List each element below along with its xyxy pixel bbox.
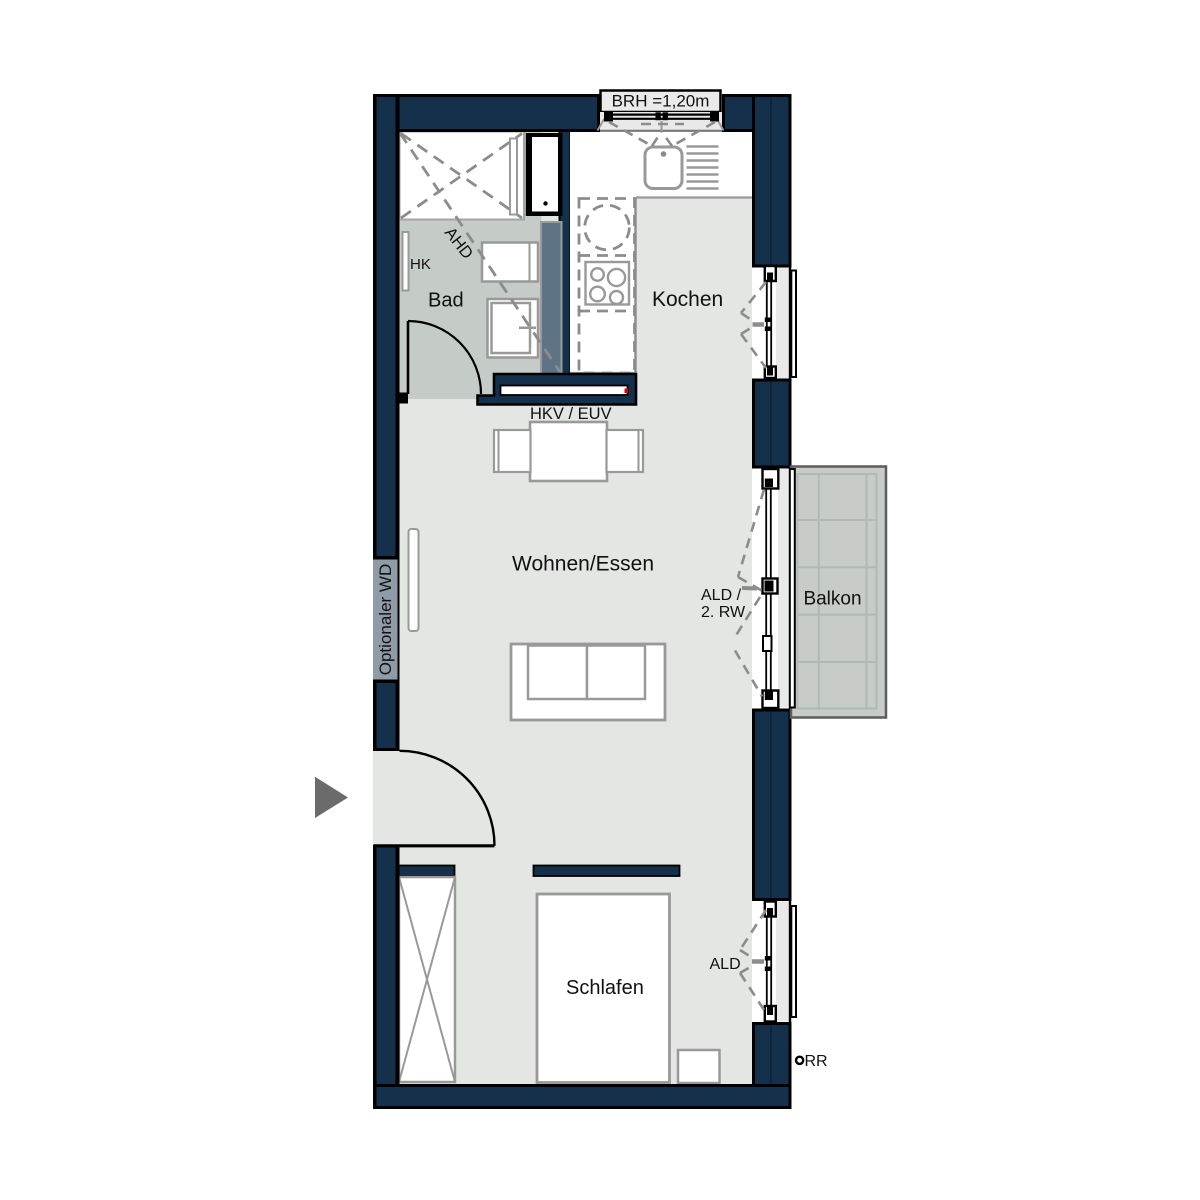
svg-text:Balkon: Balkon <box>803 589 861 610</box>
svg-text:ALD /: ALD / <box>701 587 742 604</box>
svg-text:HKV / EUV: HKV / EUV <box>530 405 612 423</box>
svg-text:ALD: ALD <box>710 956 741 973</box>
svg-text:Bad: Bad <box>428 290 464 312</box>
svg-text:Wohnen/Essen: Wohnen/Essen <box>512 553 654 576</box>
svg-text:2. RW: 2. RW <box>701 604 746 621</box>
svg-text:Kochen: Kochen <box>652 288 723 311</box>
svg-text:BRH =1,20m: BRH =1,20m <box>612 92 710 111</box>
svg-text:Schlafen: Schlafen <box>566 977 644 999</box>
svg-text:HK: HK <box>410 256 431 273</box>
svg-text:RR: RR <box>805 1053 828 1070</box>
svg-text:Optionaler WD: Optionaler WD <box>376 564 395 675</box>
